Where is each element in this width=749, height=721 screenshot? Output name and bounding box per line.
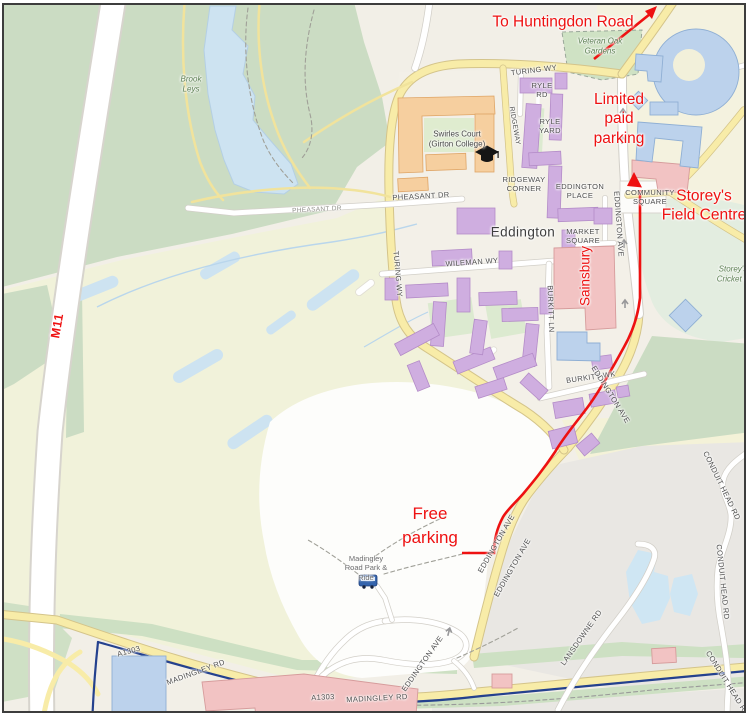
small-building-1 (492, 674, 512, 688)
map-graphics (2, 3, 746, 713)
small-building-2 (652, 647, 677, 663)
map-screenshot: TURING WY TURING WY RYLERD RYLEYARD RIDG… (0, 0, 749, 721)
map-canvas[interactable]: TURING WY TURING WY RYLERD RYLEYARD RIDG… (2, 3, 746, 713)
map-frame: TURING WY TURING WY RYLERD RYLEYARD RIDG… (2, 3, 746, 713)
